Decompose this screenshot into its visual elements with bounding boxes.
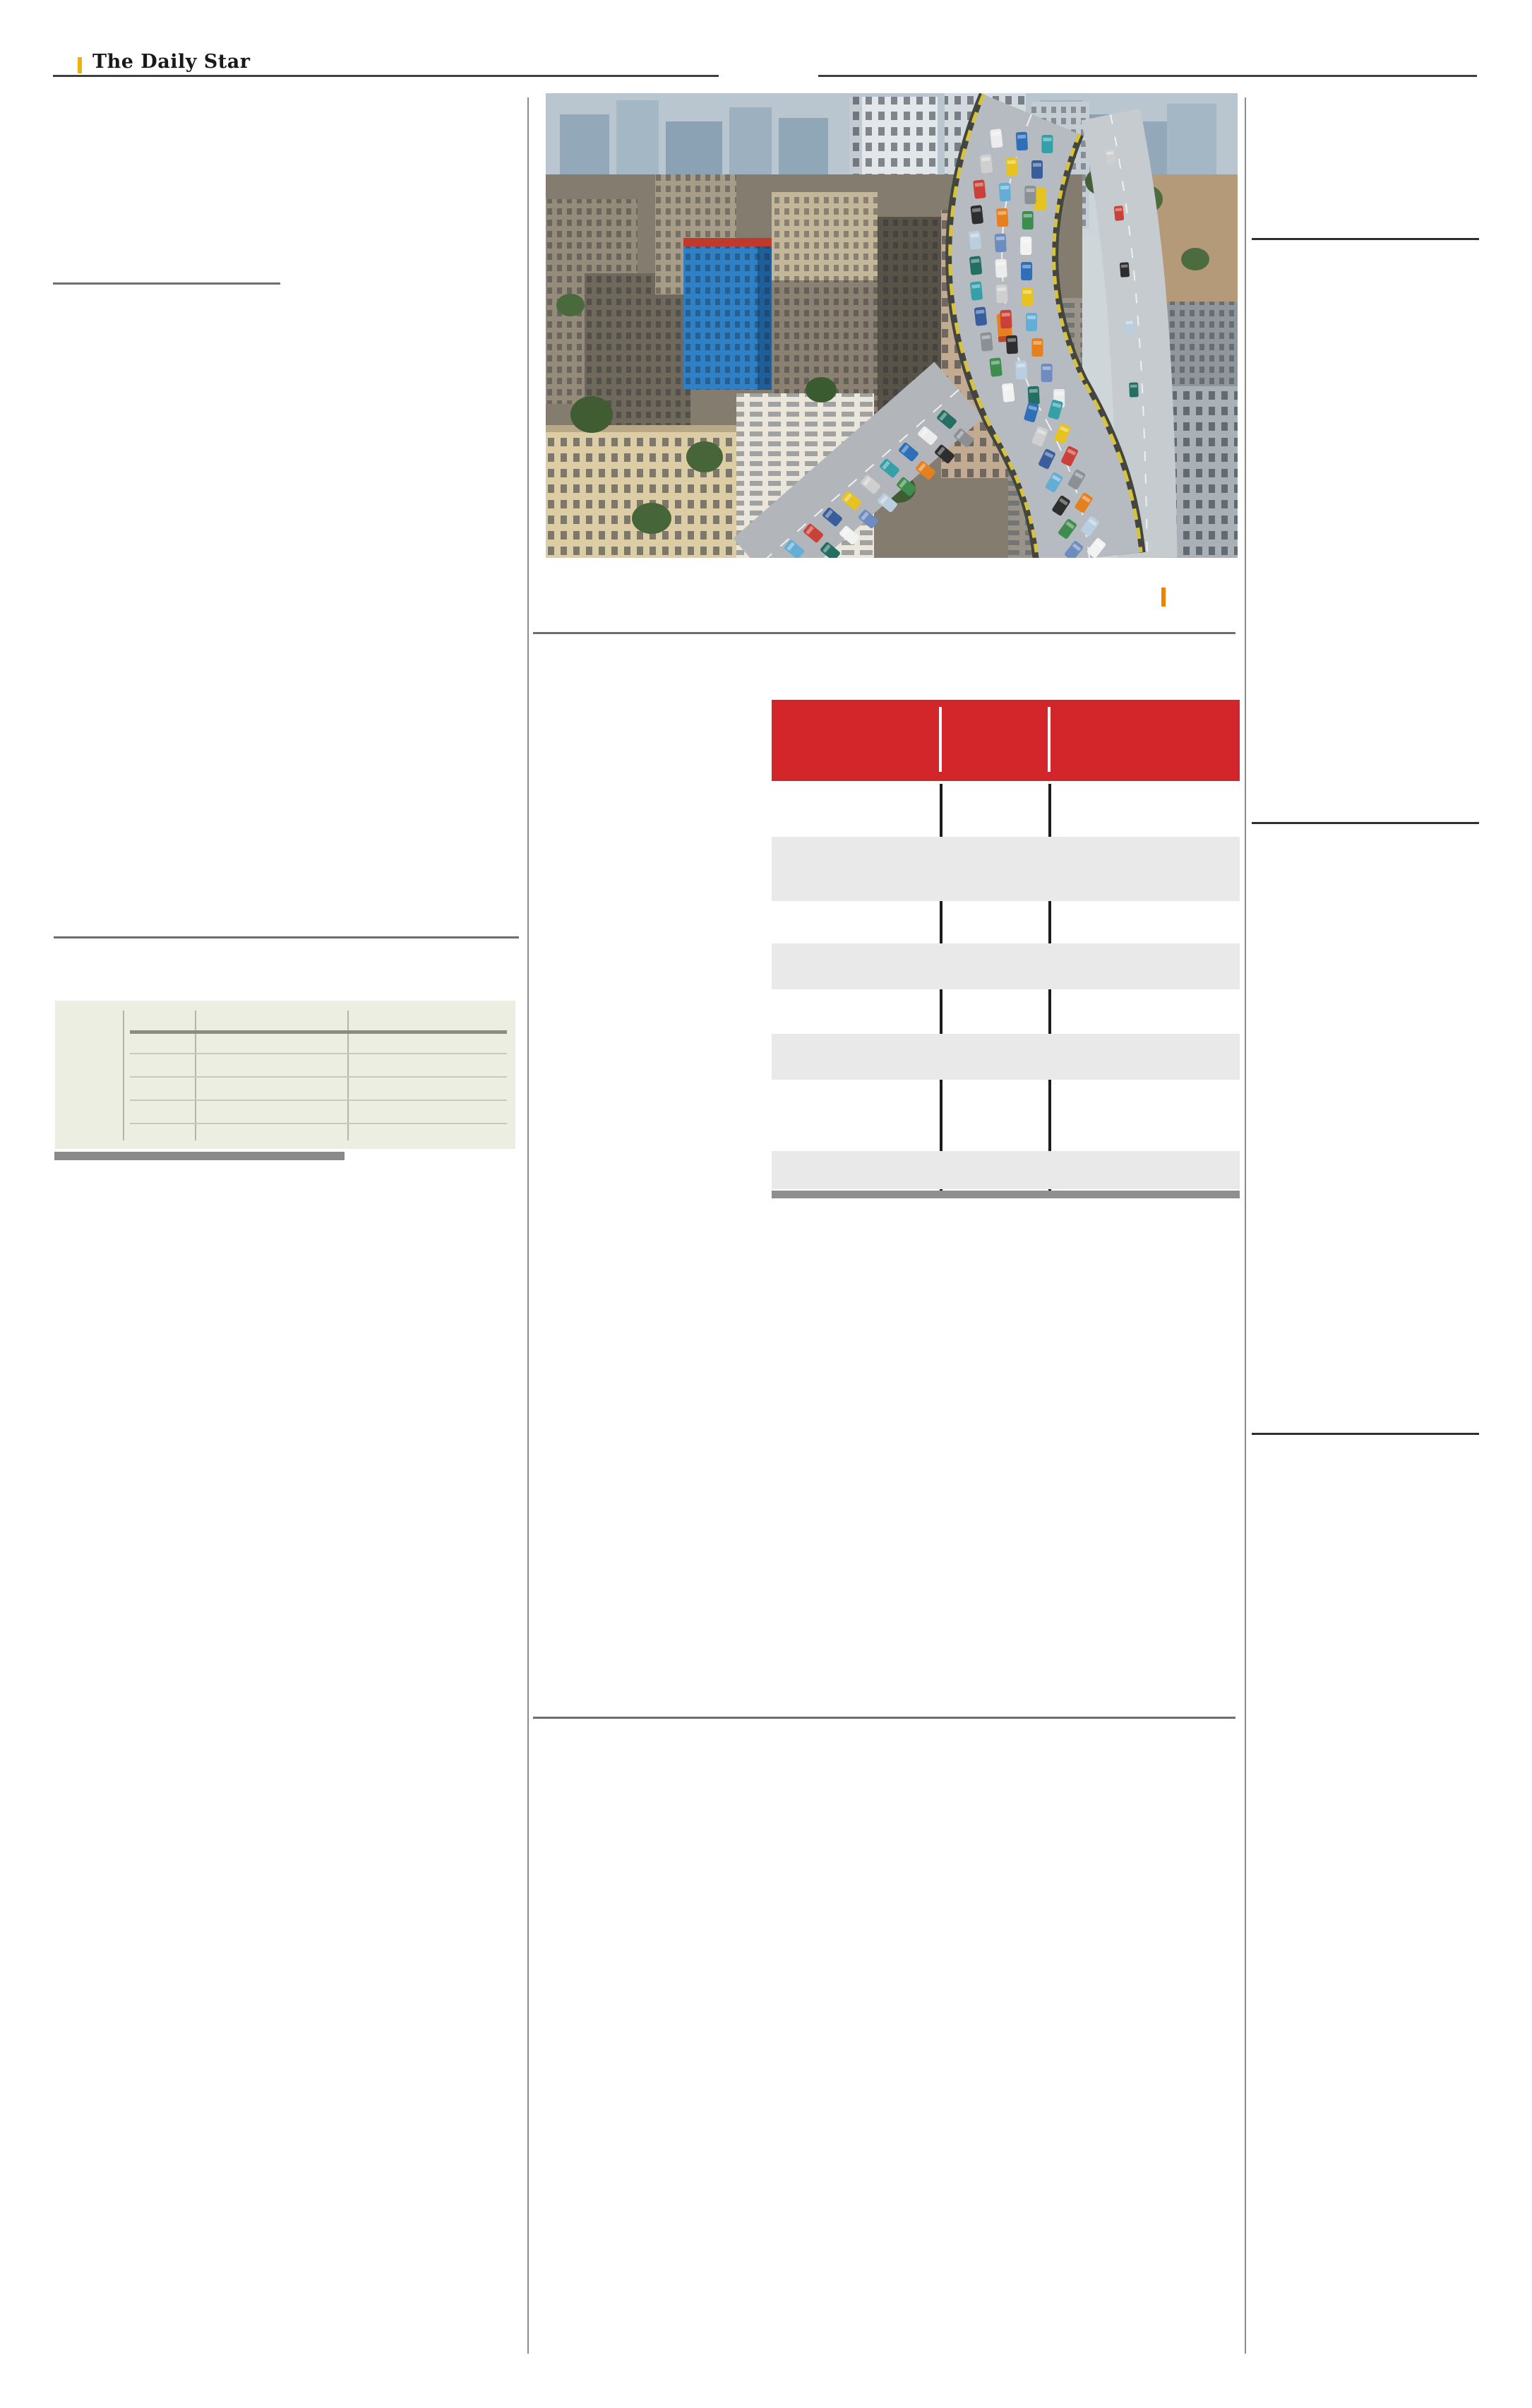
left-table-row-rule xyxy=(130,1053,507,1054)
top-rule-left-segment xyxy=(53,75,719,77)
aerial-traffic-photo xyxy=(546,93,1238,558)
right-column-rule-2 xyxy=(1252,822,1479,824)
left-column-footer-bar xyxy=(54,1152,345,1160)
table-header-red xyxy=(772,700,1240,781)
left-table-row-rule xyxy=(130,1099,507,1101)
left-column-rule-top xyxy=(53,282,280,285)
left-table-gridline xyxy=(123,1011,124,1140)
table-header-separator xyxy=(939,707,942,772)
left-data-table xyxy=(55,1001,515,1149)
photo-credit-divider-bar xyxy=(1161,588,1166,607)
center-column-rule-bottom xyxy=(533,1717,1235,1719)
left-table-row-rule xyxy=(130,1123,507,1124)
right-column-rule-3 xyxy=(1252,1433,1479,1435)
table-footer-bar xyxy=(772,1191,1240,1198)
table-row-shaded xyxy=(772,943,1240,989)
traffic-scene-illustration xyxy=(546,93,1238,558)
newspaper-page: The Daily Star xyxy=(0,0,1532,2408)
left-column-rule-mid xyxy=(54,936,519,938)
top-rule-right-segment xyxy=(818,75,1477,77)
table-row-shaded xyxy=(772,1151,1240,1189)
table-row-shaded xyxy=(772,1034,1240,1080)
column-separator-right xyxy=(1245,97,1246,2354)
table-header-separator xyxy=(1048,707,1051,772)
table-row-shaded xyxy=(772,837,1240,901)
center-column-rule-top xyxy=(533,632,1235,634)
masthead-accent-bar xyxy=(78,57,82,73)
left-table-row-rule xyxy=(130,1076,507,1078)
left-table-header-rule xyxy=(130,1030,507,1034)
right-column-rule-1 xyxy=(1252,238,1479,240)
column-separator-left xyxy=(527,97,529,2354)
masthead-title: The Daily Star xyxy=(92,51,251,73)
